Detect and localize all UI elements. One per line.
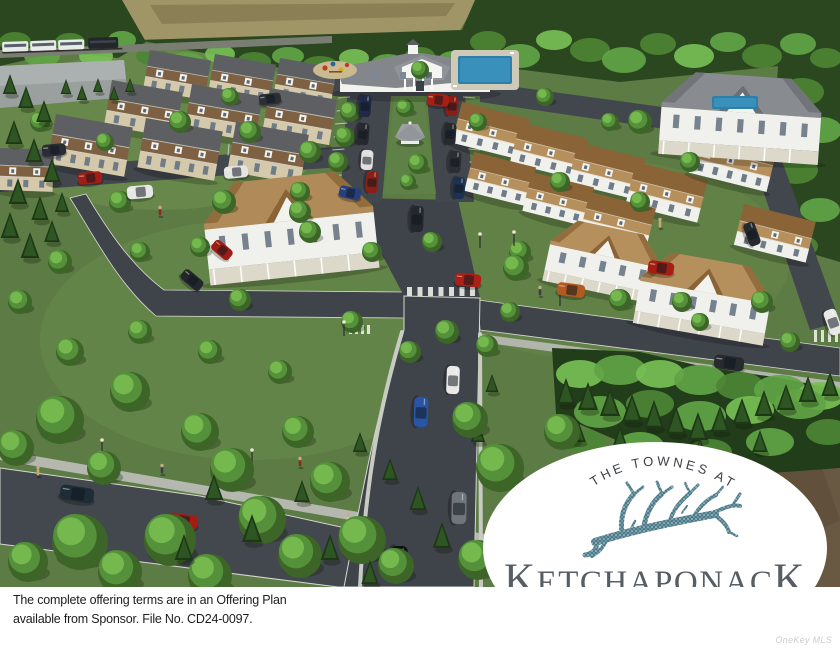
disclaimer-line: available from Sponsor. File No. CD24-00… xyxy=(13,610,287,629)
car xyxy=(410,395,429,429)
playground xyxy=(313,61,357,79)
car xyxy=(443,364,460,395)
disclaimer-text: The complete offering terms are in an Of… xyxy=(13,591,287,629)
car xyxy=(407,204,424,233)
listing-image: THE TOWNES AT xyxy=(0,0,840,649)
car xyxy=(447,490,466,526)
watermark: OneKey MLS xyxy=(775,635,832,645)
pool xyxy=(451,50,519,90)
pool xyxy=(712,96,758,109)
disclaimer-line: The complete offering terms are in an Of… xyxy=(13,591,287,610)
coral-branch-icon xyxy=(585,482,740,556)
logo-arc-text: THE TOWNES AT xyxy=(587,453,739,492)
footer-band: The complete offering terms are in an Of… xyxy=(0,587,840,649)
